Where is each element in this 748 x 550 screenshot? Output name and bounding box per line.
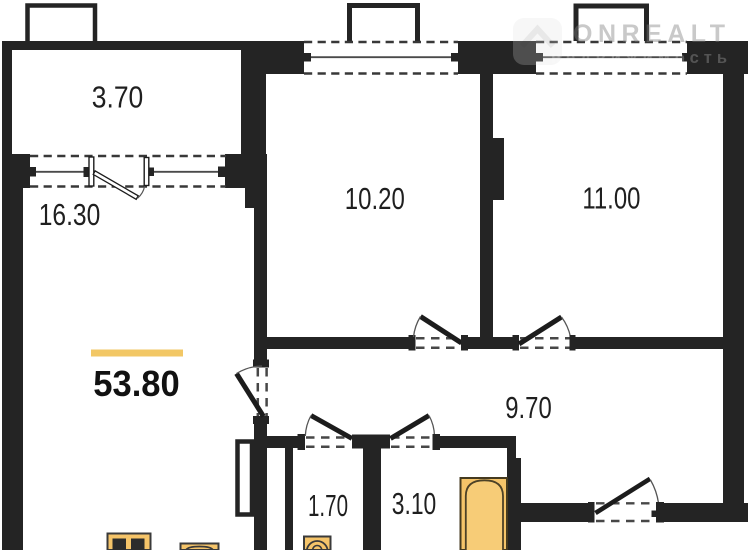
svg-text:9.70: 9.70 — [505, 390, 552, 425]
svg-text:10.20: 10.20 — [345, 181, 405, 216]
svg-text:3.10: 3.10 — [392, 486, 437, 521]
svg-text:16.30: 16.30 — [39, 197, 101, 232]
svg-text:53.80: 53.80 — [93, 363, 180, 404]
svg-text:11.00: 11.00 — [582, 181, 640, 216]
svg-text:3.70: 3.70 — [92, 80, 144, 115]
svg-text:недвижимость: недвижимость — [551, 49, 732, 67]
svg-text:ONREALT: ONREALT — [573, 20, 730, 48]
svg-text:1.70: 1.70 — [308, 488, 348, 523]
